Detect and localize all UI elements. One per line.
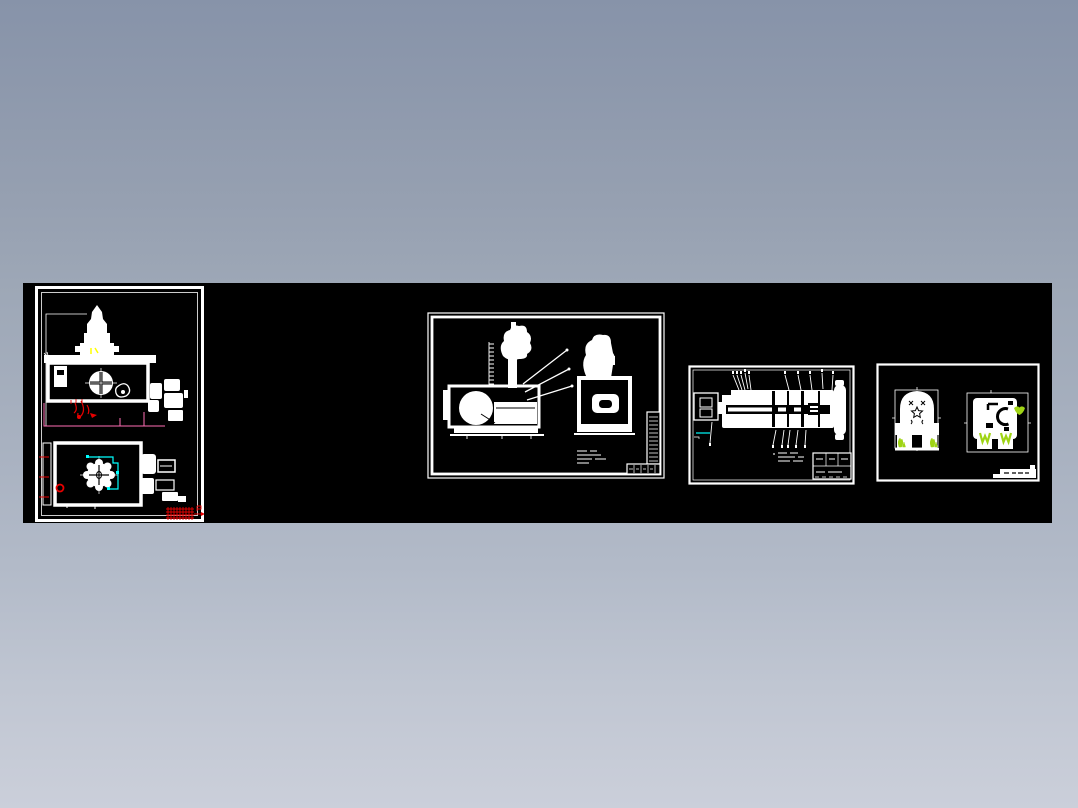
sheet4-left-view [892,387,941,451]
column-head-blob [501,326,532,361]
pulley-circle [459,391,493,425]
side-strip [43,443,51,505]
sheet1-front-view [44,305,188,426]
shaft-assembly [694,380,846,440]
sheet2-left-view [443,322,574,439]
shield-detail [116,384,130,397]
magenta-dimension-bracket [44,403,165,426]
cad-sheet-1 [35,286,204,522]
page-background [0,0,1078,808]
notes-text [774,453,804,461]
cad-sheet-2 [427,312,665,479]
end-flange [834,385,846,435]
sheet2-right-view [574,335,635,435]
technical-notes-text [577,451,606,463]
motor-cluster-front [148,379,188,421]
preview-strip [23,283,1052,523]
sheet4-right-view [964,390,1031,452]
title-block-strip [993,465,1036,478]
cad-sheet-3 [688,365,855,485]
cad-sheet-4 [876,363,1040,482]
motor-cluster-plan [141,454,186,502]
red-title-block-stamp [166,506,204,520]
title-block [813,453,851,479]
callout-leaders-top [732,369,834,390]
ladder-scale [489,342,494,386]
sheet1-plan-view [39,443,186,509]
